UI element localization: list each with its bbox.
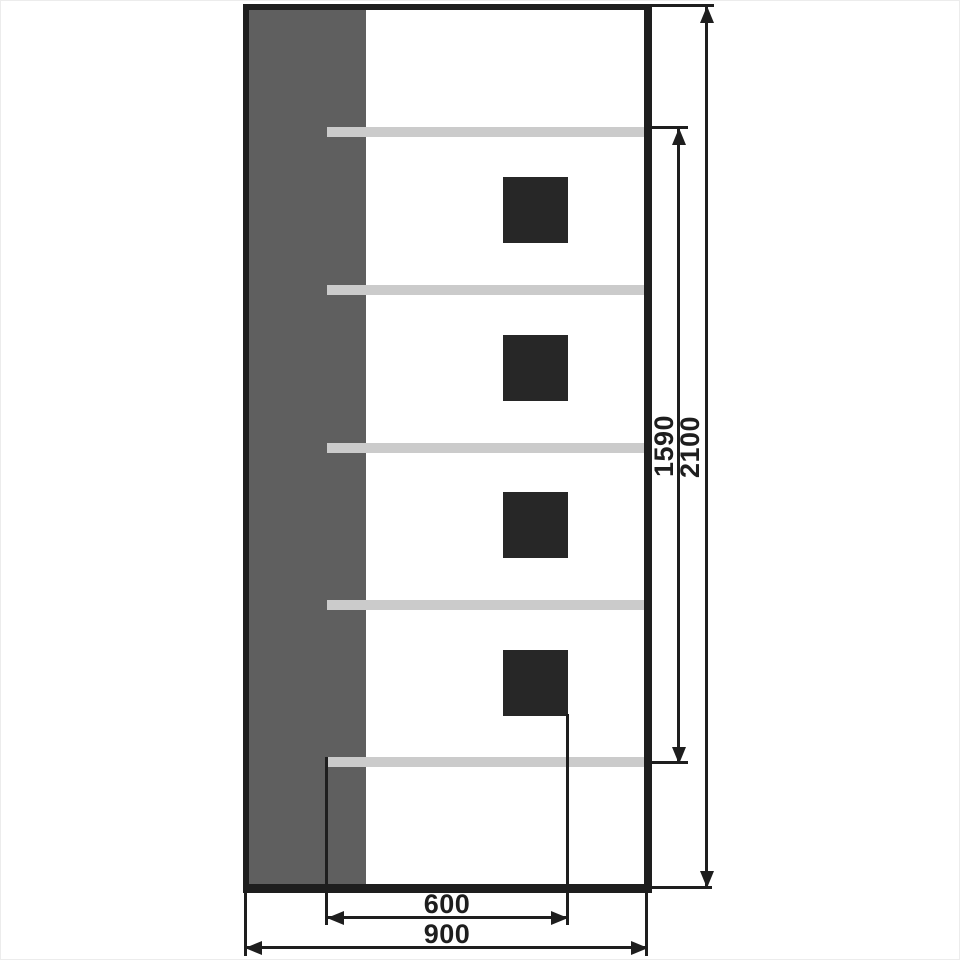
shelf-1 bbox=[327, 127, 644, 137]
dim-600-label: 600 bbox=[387, 892, 507, 916]
shelf-3 bbox=[327, 443, 644, 453]
dim-2100-label: 2100 bbox=[677, 387, 703, 507]
dim-900-label: 900 bbox=[387, 922, 507, 946]
dim-600-arrow-left-icon bbox=[327, 911, 344, 925]
dim-900-arrow-right-icon bbox=[631, 941, 648, 955]
handle-block-1 bbox=[503, 177, 568, 243]
handle-block-2 bbox=[503, 335, 568, 401]
dim-2100-line bbox=[705, 6, 708, 888]
dim-600-arrow-right-icon bbox=[551, 911, 568, 925]
cabinet-outline bbox=[243, 4, 652, 893]
shelf-2 bbox=[327, 285, 644, 295]
dim-600-extension-left bbox=[325, 757, 328, 925]
dim-1590-arrow-top-icon bbox=[672, 128, 686, 145]
dim-1590-label: 1590 bbox=[651, 386, 677, 506]
dim-2100-arrow-bottom-icon bbox=[700, 871, 714, 888]
handle-block-3 bbox=[503, 492, 568, 558]
dim-1590-arrow-bottom-icon bbox=[672, 747, 686, 764]
dim-900-arrow-left-icon bbox=[245, 941, 262, 955]
drawing-canvas: 2100 1590 600 900 bbox=[0, 0, 960, 960]
shelf-5 bbox=[327, 757, 644, 767]
handle-block-4 bbox=[503, 650, 568, 716]
dim-600-extension-right bbox=[566, 714, 569, 925]
shelf-4 bbox=[327, 600, 644, 610]
dim-2100-arrow-top-icon bbox=[700, 6, 714, 23]
